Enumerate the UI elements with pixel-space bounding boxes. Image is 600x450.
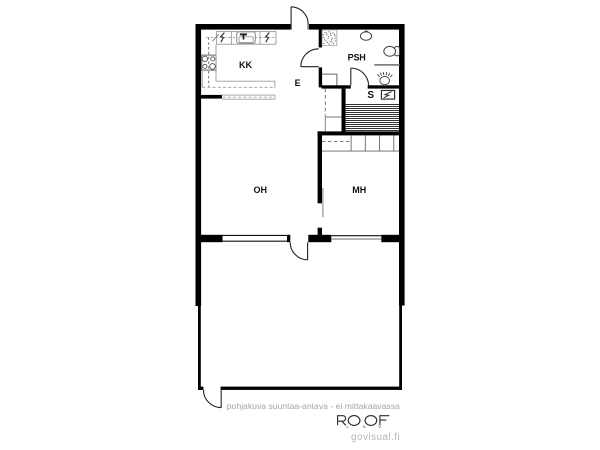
svg-text:OH: OH (254, 185, 268, 195)
svg-text:E: E (295, 78, 301, 88)
svg-text:MH: MH (352, 185, 366, 195)
svg-text:govisual.fi: govisual.fi (351, 432, 400, 443)
svg-text:S: S (367, 90, 374, 101)
svg-text:V: V (378, 424, 381, 429)
svg-text:KK: KK (239, 60, 252, 70)
svg-text:PSH: PSH (348, 52, 366, 62)
svg-text:pohjakuva suuntaa-antava - ei: pohjakuva suuntaa-antava - ei mittakaava… (227, 401, 400, 411)
svg-text:K: K (363, 424, 366, 429)
